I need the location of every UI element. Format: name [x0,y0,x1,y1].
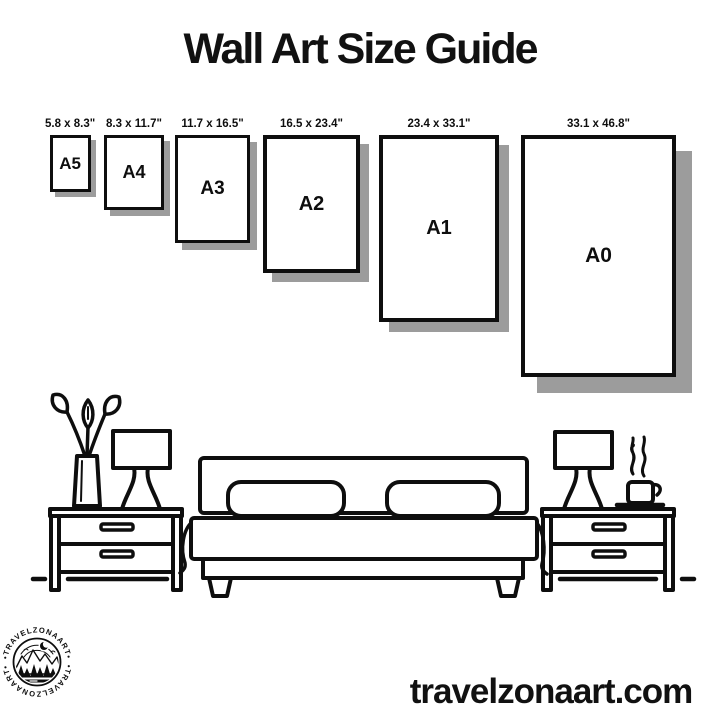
bedroom-illustration: •TRAVELZONAART• •TRAVELZONAART• [0,0,720,720]
bed-icon [180,458,547,596]
brand-logo: •TRAVELZONAART• •TRAVELZONAART• [1,625,74,698]
size-guide-poster: Wall Art Size Guide 5.8 x 8.3" A5 8.3 x … [0,0,720,720]
logo-arc-text-top: •TRAVELZONAART• [1,625,74,659]
plant-vase-icon [52,394,119,506]
table-lamp-icon [113,431,170,509]
table-lamp-icon [555,432,612,509]
website-url: travelzonaart.com [251,672,720,712]
coffee-cup-icon [617,437,663,505]
